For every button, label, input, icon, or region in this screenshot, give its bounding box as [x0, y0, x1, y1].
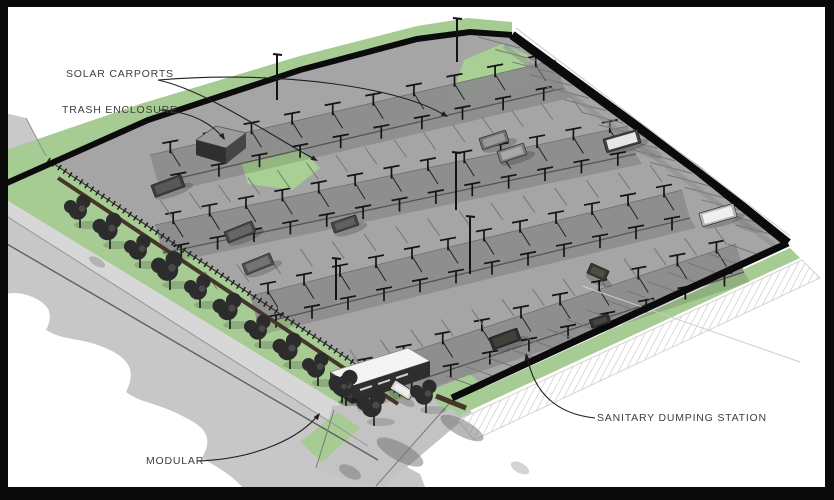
tree-foliage-highlight — [108, 225, 115, 232]
site-plan-rendering: SOLAR CARPORTS TRASH ENCLOSURE MODULAR S… — [0, 0, 834, 500]
tree-foliage-highlight — [168, 264, 176, 272]
light-pole-arm — [466, 216, 475, 217]
tree-shadow — [367, 418, 395, 426]
frame-bottom — [0, 487, 834, 500]
light-pole-arm — [452, 152, 461, 153]
label-trash-enclosure: TRASH ENCLOSURE — [62, 104, 178, 116]
tree-foliage-highlight — [425, 390, 432, 397]
tree-foliage-highlight — [372, 402, 379, 409]
label-sanitary-dumping-station: SANITARY DUMPING STATION — [597, 412, 767, 424]
tree-foliage-highlight — [341, 384, 346, 389]
tree-shadow — [420, 406, 446, 414]
light-pole-arm — [332, 258, 341, 259]
tree-foliage-highlight — [259, 325, 266, 332]
tree-foliage-highlight — [228, 305, 235, 312]
tree-foliage-highlight — [317, 363, 324, 370]
tree-foliage-highlight — [288, 345, 295, 352]
frame-right — [825, 0, 834, 500]
frame-left — [0, 0, 8, 500]
tree-foliage-highlight — [139, 245, 146, 252]
light-pole-arm — [273, 54, 282, 55]
frame-top — [0, 0, 834, 7]
light-pole-arm — [453, 18, 462, 19]
tree-foliage-highlight — [79, 205, 86, 212]
tree-foliage-highlight — [199, 285, 206, 292]
label-solar-carports: SOLAR CARPORTS — [66, 68, 174, 80]
label-modular: MODULAR — [146, 455, 204, 467]
